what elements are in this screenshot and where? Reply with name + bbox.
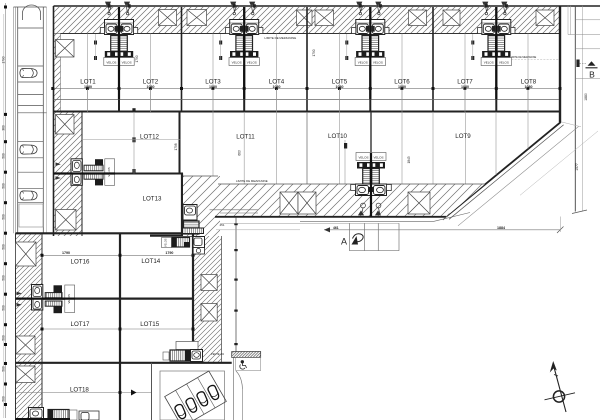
svg-text:500: 500 (2, 366, 6, 372)
svg-text:B: B (589, 70, 595, 80)
svg-text:LOT15: LOT15 (140, 321, 159, 328)
svg-text:LIMITE DE MEZZANINE: LIMITE DE MEZZANINE (236, 179, 268, 183)
svg-text:1080: 1080 (273, 85, 281, 89)
svg-text:500: 500 (2, 183, 6, 189)
svg-text:500: 500 (2, 396, 6, 402)
svg-text:1080: 1080 (336, 85, 344, 89)
svg-text:1790: 1790 (165, 251, 173, 255)
svg-text:500: 500 (2, 153, 6, 159)
svg-text:461: 461 (333, 226, 339, 230)
svg-text:VELOS: VELOS (107, 167, 111, 176)
svg-text:500: 500 (2, 335, 6, 341)
svg-text:1790: 1790 (312, 49, 316, 56)
svg-text:VELOS: VELOS (165, 238, 168, 247)
svg-text:LOT10: LOT10 (328, 133, 347, 140)
svg-text:1577: 1577 (575, 163, 579, 171)
svg-text:LOT9: LOT9 (455, 133, 471, 140)
svg-text:LIMITE DE MEZZANINE: LIMITE DE MEZZANINE (265, 36, 297, 40)
svg-text:1884: 1884 (497, 226, 505, 230)
svg-text:1080: 1080 (147, 85, 155, 89)
svg-text:1880: 1880 (584, 93, 588, 101)
svg-text:663: 663 (238, 150, 242, 156)
svg-text:LOT12: LOT12 (140, 134, 159, 141)
svg-text:LIMITE DE MEZZANINE: LIMITE DE MEZZANINE (510, 56, 537, 59)
svg-text:500: 500 (2, 275, 6, 281)
svg-text:LOT18: LOT18 (70, 387, 89, 394)
svg-text:VELOS: VELOS (358, 155, 368, 159)
svg-text:451: 451 (219, 223, 224, 227)
svg-text:500: 500 (2, 214, 6, 220)
svg-text:LOT16: LOT16 (71, 259, 90, 266)
svg-text:1790: 1790 (62, 251, 70, 255)
svg-text:LOT11: LOT11 (236, 134, 255, 141)
svg-text:1080: 1080 (525, 85, 533, 89)
svg-text:VELOS: VELOS (373, 155, 383, 159)
svg-text:500: 500 (2, 305, 6, 311)
svg-text:LOT14: LOT14 (141, 258, 160, 265)
svg-text:1080: 1080 (398, 85, 406, 89)
svg-text:A: A (341, 237, 347, 247)
svg-text:PENTE 4%: PENTE 4% (211, 352, 225, 356)
svg-text:1843: 1843 (407, 156, 411, 163)
svg-text:360: 360 (2, 125, 6, 131)
svg-text:1790: 1790 (2, 56, 6, 63)
svg-text:500: 500 (2, 244, 6, 250)
svg-text:1080: 1080 (209, 85, 217, 89)
svg-text:1790: 1790 (135, 55, 139, 62)
svg-text:1080: 1080 (461, 85, 469, 89)
svg-text:LOT13: LOT13 (143, 196, 162, 203)
svg-text:1080: 1080 (84, 85, 92, 89)
svg-text:1798: 1798 (174, 143, 178, 150)
svg-text:LOT17: LOT17 (71, 321, 90, 328)
